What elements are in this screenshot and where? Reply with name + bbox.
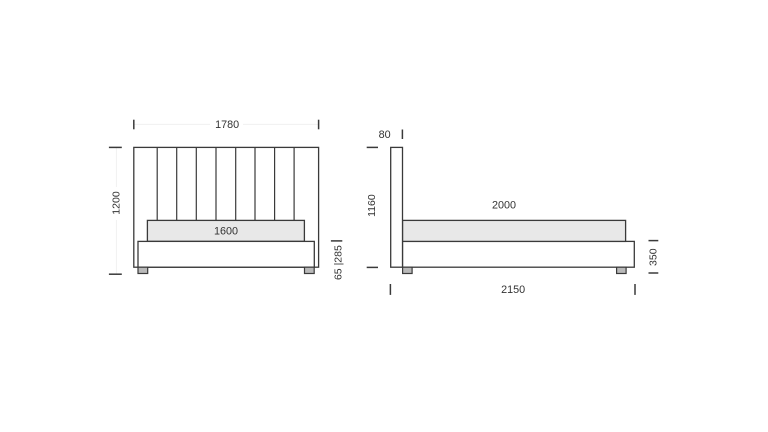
svg-text:1600: 1600 — [214, 226, 238, 238]
svg-text:1780: 1780 — [215, 119, 239, 131]
svg-text:2000: 2000 — [492, 200, 516, 212]
svg-text:65 |285: 65 |285 — [332, 245, 344, 280]
svg-text:1200: 1200 — [111, 191, 123, 215]
svg-text:350: 350 — [647, 248, 659, 266]
svg-text:80: 80 — [379, 129, 391, 141]
svg-text:1160: 1160 — [366, 194, 378, 217]
svg-text:2150: 2150 — [501, 284, 525, 296]
